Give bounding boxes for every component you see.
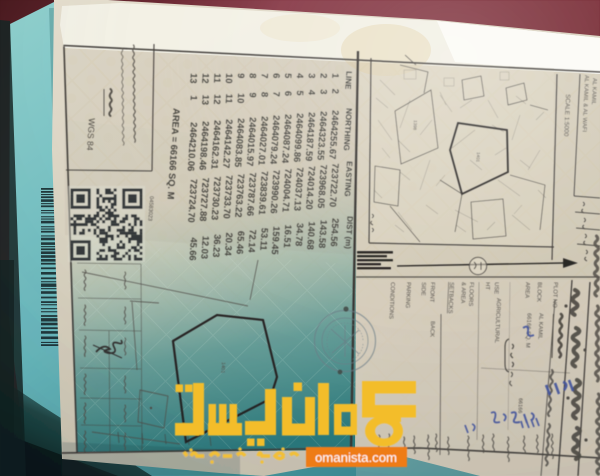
svg-text:omanista.com: omanista.com [315,450,397,465]
